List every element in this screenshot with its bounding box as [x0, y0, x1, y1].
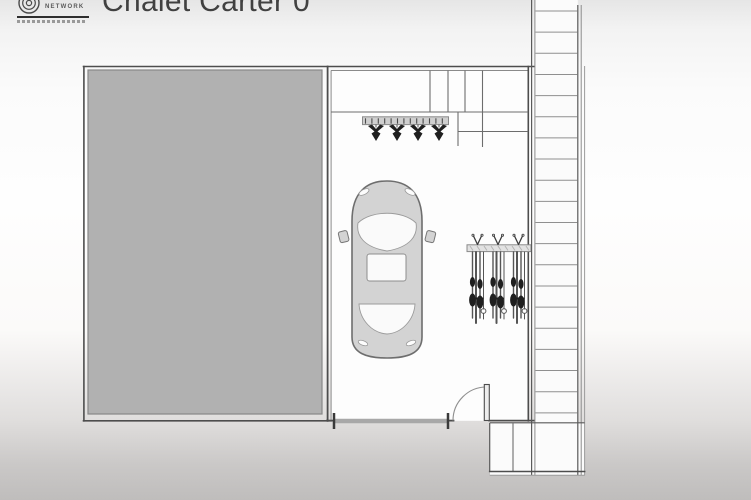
- floor-plan: [0, 0, 751, 500]
- storage-slab: [88, 70, 322, 414]
- video-frame: NETWORK Chalet Carter 0: [0, 0, 751, 500]
- stair-floor: [535, 0, 578, 475]
- landing-floor: [490, 423, 585, 475]
- car: [338, 181, 436, 358]
- car-sunroof: [367, 254, 406, 281]
- door-leaf: [484, 385, 489, 421]
- car-mirror-right: [425, 230, 436, 243]
- car-mirror-left: [338, 230, 349, 243]
